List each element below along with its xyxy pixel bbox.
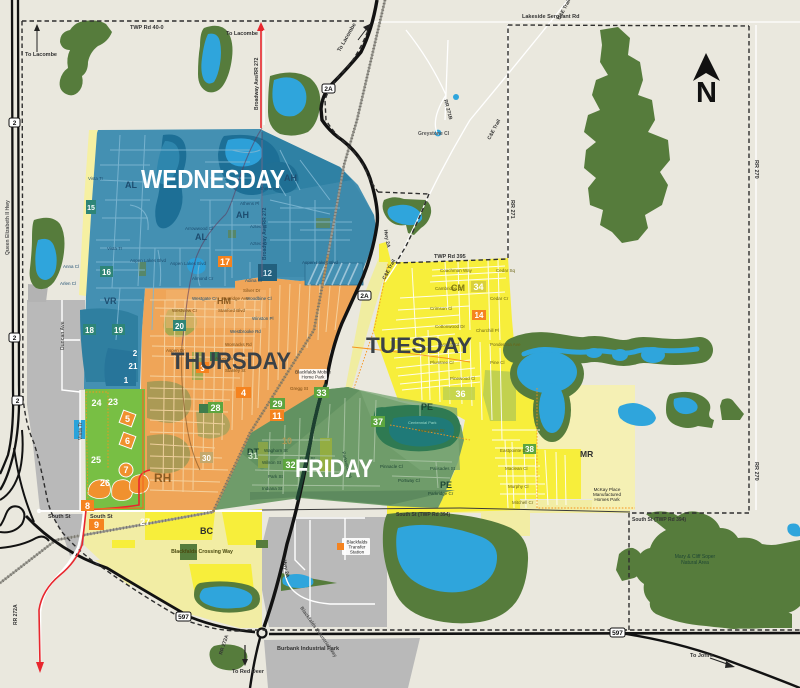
svg-text:Home Park: Home Park — [302, 375, 326, 380]
svg-text:WEDNESDAY: WEDNESDAY — [141, 164, 285, 194]
svg-text:Broadway Ave/RR 272: Broadway Ave/RR 272 — [262, 207, 268, 260]
svg-text:RH: RH — [154, 471, 171, 485]
svg-text:Arlen Cl: Arlen Cl — [60, 281, 76, 286]
svg-text:TWP Rd 40-0: TWP Rd 40-0 — [130, 25, 164, 31]
svg-text:34: 34 — [473, 282, 483, 292]
svg-text:Vista Tr: Vista Tr — [88, 176, 104, 181]
svg-text:Aspen Lakes Blvd: Aspen Lakes Blvd — [130, 258, 167, 263]
svg-text:Parkridge Cr: Parkridge Cr — [428, 491, 454, 496]
svg-text:Mitchell Cr: Mitchell Cr — [512, 500, 534, 505]
svg-text:To Red Deer: To Red Deer — [232, 669, 265, 675]
svg-text:26: 26 — [100, 478, 110, 488]
svg-text:Silver Dr: Silver Dr — [243, 288, 261, 293]
svg-text:33: 33 — [316, 388, 326, 398]
svg-text:AL: AL — [125, 180, 137, 190]
svg-text:Aspen Lakes Blvd: Aspen Lakes Blvd — [302, 260, 339, 265]
svg-text:Westgate Cr: Westgate Cr — [192, 296, 217, 301]
svg-text:RR 270: RR 270 — [753, 160, 759, 179]
svg-text:36: 36 — [455, 389, 465, 399]
svg-text:PE: PE — [421, 402, 433, 412]
svg-text:7: 7 — [123, 465, 128, 475]
svg-text:MR: MR — [580, 449, 593, 459]
svg-text:BC: BC — [200, 526, 213, 536]
svg-text:TWP Rd 395: TWP Rd 395 — [434, 254, 466, 260]
svg-text:32: 32 — [285, 460, 295, 470]
svg-text:To Lacombe: To Lacombe — [226, 31, 258, 37]
svg-text:18: 18 — [85, 326, 94, 335]
svg-text:2: 2 — [13, 120, 17, 127]
svg-text:24: 24 — [91, 398, 101, 408]
svg-text:37: 37 — [373, 417, 383, 427]
svg-text:10: 10 — [282, 436, 292, 446]
svg-text:Murphy Cl: Murphy Cl — [508, 484, 529, 489]
svg-text:Westview Cr: Westview Cr — [172, 308, 198, 313]
svg-text:12: 12 — [263, 269, 272, 278]
svg-text:Palisades St: Palisades St — [430, 466, 456, 471]
svg-text:2: 2 — [133, 349, 138, 358]
svg-text:To Lacombe: To Lacombe — [25, 52, 57, 58]
svg-text:Athens Pl: Athens Pl — [240, 201, 259, 206]
svg-text:Coachman Way: Coachman Way — [440, 268, 473, 273]
svg-text:TUESDAY: TUESDAY — [366, 333, 472, 358]
svg-text:THURSDAY: THURSDAY — [171, 348, 291, 375]
svg-text:20: 20 — [175, 322, 184, 331]
svg-text:Waghorn St: Waghorn St — [264, 448, 288, 453]
svg-text:Natural Area: Natural Area — [681, 560, 709, 566]
svg-text:Adina Cl: Adina Cl — [245, 278, 262, 283]
svg-text:Portway Cl: Portway Cl — [398, 478, 420, 483]
svg-text:RR 272A: RR 272A — [13, 604, 19, 625]
svg-text:Crimson Cl: Crimson Cl — [430, 306, 452, 311]
svg-text:Wilson St: Wilson St — [262, 460, 282, 465]
svg-text:30: 30 — [202, 454, 211, 463]
svg-text:16: 16 — [102, 268, 111, 277]
svg-text:Maclean Cl: Maclean Cl — [505, 466, 528, 471]
svg-text:5: 5 — [125, 414, 130, 424]
svg-text:RR 271: RR 271 — [509, 200, 515, 219]
svg-text:Eastpointe Dr: Eastpointe Dr — [500, 448, 528, 453]
svg-text:2A: 2A — [360, 293, 369, 300]
svg-text:Vista Tr: Vista Tr — [107, 246, 123, 251]
svg-text:Station: Station — [350, 550, 365, 555]
svg-text:8: 8 — [85, 501, 90, 511]
svg-text:South St: South St — [48, 514, 71, 520]
svg-text:Womacks Rd: Womacks Rd — [225, 342, 252, 347]
svg-text:2: 2 — [13, 335, 17, 342]
svg-text:17: 17 — [220, 257, 230, 267]
svg-text:Pinewood Cl: Pinewood Cl — [450, 376, 475, 381]
svg-text:2: 2 — [16, 398, 20, 405]
svg-text:Greystone Cl: Greystone Cl — [418, 131, 450, 137]
svg-text:6: 6 — [125, 436, 130, 446]
svg-text:AH: AH — [284, 173, 297, 183]
svg-text:25: 25 — [91, 455, 101, 465]
svg-text:4: 4 — [241, 388, 246, 398]
svg-text:Cambridge Cl: Cambridge Cl — [435, 286, 463, 291]
svg-text:Woodbine Cl: Woodbine Cl — [246, 296, 272, 301]
svg-text:597: 597 — [612, 630, 623, 637]
svg-text:31: 31 — [248, 451, 258, 461]
svg-text:Centennial Park: Centennial Park — [408, 420, 436, 425]
svg-text:27: 27 — [140, 517, 150, 527]
svg-text:Panorama Dr: Panorama Dr — [418, 428, 445, 433]
svg-text:VR: VR — [104, 296, 117, 306]
svg-text:Park St: Park St — [268, 474, 284, 479]
svg-text:AH: AH — [236, 210, 249, 220]
svg-text:Almond Cr: Almond Cr — [192, 276, 214, 281]
svg-text:South St (TWP Rd 394): South St (TWP Rd 394) — [632, 517, 686, 523]
svg-text:Duncan Ave: Duncan Ave — [60, 321, 66, 350]
svg-text:Aztec St: Aztec St — [250, 224, 268, 229]
svg-text:23: 23 — [108, 397, 118, 407]
svg-text:Churchill Pl: Churchill Pl — [476, 328, 499, 333]
svg-text:Pinnacle Cl: Pinnacle Cl — [380, 464, 403, 469]
svg-text:Aztec Cr: Aztec Cr — [250, 241, 268, 246]
svg-text:15: 15 — [87, 205, 95, 212]
svg-text:South St: South St — [90, 514, 113, 520]
svg-text:1: 1 — [124, 376, 129, 385]
svg-text:Plumtree Cr: Plumtree Cr — [430, 360, 455, 365]
svg-text:19: 19 — [114, 326, 123, 335]
svg-text:21: 21 — [129, 362, 138, 371]
svg-text:Pine Cl: Pine Cl — [490, 360, 505, 365]
svg-text:29: 29 — [272, 399, 282, 409]
svg-text:Homes Park: Homes Park — [594, 497, 620, 502]
svg-text:Aspen Lakes Blvd: Aspen Lakes Blvd — [170, 261, 207, 266]
svg-text:Lakeside Sergeant Rd: Lakeside Sergeant Rd — [522, 14, 579, 20]
svg-text:FRIDAY: FRIDAY — [295, 455, 373, 483]
svg-text:11: 11 — [272, 411, 282, 421]
svg-text:597: 597 — [178, 614, 189, 621]
svg-text:Winston Pl: Winston Pl — [252, 316, 274, 321]
svg-text:Anna Cl: Anna Cl — [63, 264, 79, 269]
svg-text:Vista Tr: Vista Tr — [78, 422, 84, 440]
svg-text:Westbrooke Rd: Westbrooke Rd — [230, 329, 261, 334]
svg-text:2A: 2A — [324, 86, 333, 93]
svg-text:14: 14 — [475, 311, 484, 320]
svg-text:Cedar Cr: Cedar Cr — [490, 296, 509, 301]
svg-text:Cedar Sq: Cedar Sq — [496, 268, 516, 273]
svg-text:N: N — [696, 77, 717, 109]
svg-text:AL: AL — [195, 232, 207, 242]
svg-text:South St (TWP Rd 394): South St (TWP Rd 394) — [396, 512, 450, 518]
svg-text:28: 28 — [210, 403, 220, 413]
svg-text:Indiana St: Indiana St — [262, 486, 283, 491]
svg-text:Broadway Ave/RR 272: Broadway Ave/RR 272 — [254, 57, 260, 110]
svg-text:RR 270: RR 270 — [753, 462, 759, 481]
svg-text:Gregg St: Gregg St — [290, 386, 309, 391]
svg-text:Queen Elizabeth II Hwy: Queen Elizabeth II Hwy — [5, 200, 11, 255]
svg-text:To Joffre: To Joffre — [690, 653, 713, 659]
svg-text:Ponderosa Ave: Ponderosa Ave — [490, 342, 521, 347]
svg-text:9: 9 — [94, 520, 99, 530]
svg-text:Stanford Blvd: Stanford Blvd — [218, 308, 246, 313]
svg-text:Sunridge Ave: Sunridge Ave — [222, 296, 249, 301]
svg-text:Blackfalds Crossing Way: Blackfalds Crossing Way — [171, 549, 233, 555]
svg-text:Cottonwood Dr: Cottonwood Dr — [435, 324, 466, 329]
svg-text:Arrowwood Cl: Arrowwood Cl — [185, 226, 213, 231]
svg-text:PE: PE — [440, 480, 452, 490]
